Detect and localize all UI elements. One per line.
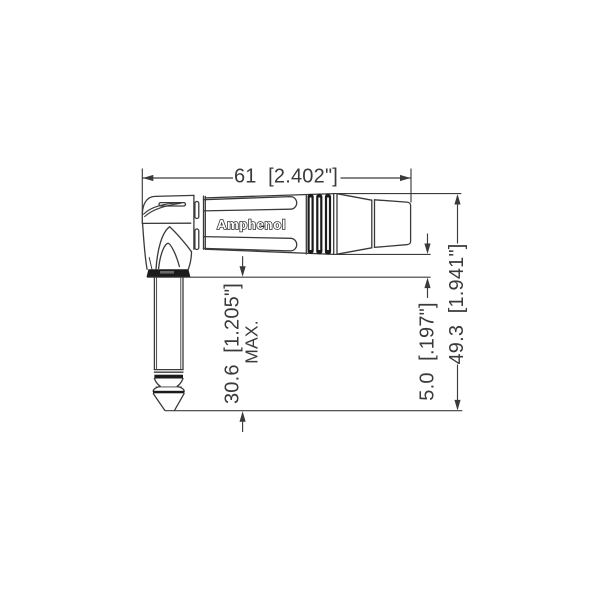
svg-text:MAX.: MAX. bbox=[242, 320, 262, 364]
svg-text:30.6 [1.205"]: 30.6 [1.205"] bbox=[221, 283, 243, 404]
svg-text:Amphenol: Amphenol bbox=[217, 217, 286, 232]
svg-text:49.3 [1.941"]: 49.3 [1.941"] bbox=[446, 243, 468, 364]
svg-text:5.0 [.197"]: 5.0 [.197"] bbox=[416, 302, 438, 400]
svg-text:61 [2.402"]: 61 [2.402"] bbox=[234, 166, 338, 188]
